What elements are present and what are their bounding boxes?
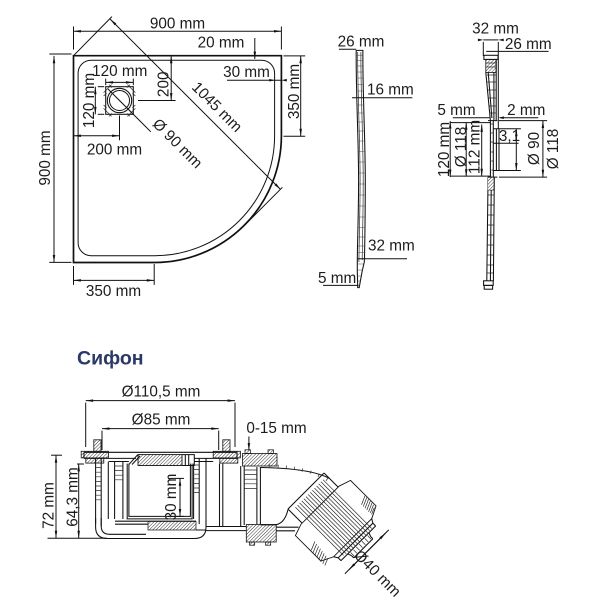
svg-text:200 mm: 200 mm	[87, 141, 142, 158]
svg-text:350 mm: 350 mm	[86, 283, 141, 300]
svg-text:2 mm: 2 mm	[507, 102, 545, 119]
svg-text:Сифон: Сифон	[77, 348, 144, 370]
svg-text:0-15 mm: 0-15 mm	[246, 420, 306, 437]
svg-text:120 mm: 120 mm	[92, 63, 147, 80]
svg-text:5 mm: 5 mm	[318, 270, 356, 287]
svg-text:Ø 90: Ø 90	[526, 132, 543, 165]
svg-text:350 mm: 350 mm	[286, 64, 303, 119]
svg-text:20 mm: 20 mm	[198, 34, 245, 51]
svg-text:16 mm: 16 mm	[367, 82, 414, 99]
svg-text:Ø85 mm: Ø85 mm	[132, 412, 191, 429]
svg-text:5 mm: 5 mm	[437, 102, 475, 119]
svg-text:26 mm: 26 mm	[505, 36, 552, 53]
svg-text:32 mm: 32 mm	[368, 238, 415, 255]
svg-text:72 mm: 72 mm	[40, 482, 57, 529]
svg-text:112 mm: 112 mm	[467, 120, 484, 174]
svg-text:120 mm: 120 mm	[81, 73, 98, 128]
svg-text:30 mm: 30 mm	[223, 64, 270, 81]
svg-text:26 mm: 26 mm	[338, 33, 385, 50]
svg-text:120 mm: 120 mm	[436, 122, 453, 177]
svg-text:Ø110,5 mm: Ø110,5 mm	[122, 384, 201, 401]
svg-text:30 mm: 30 mm	[163, 474, 180, 521]
svg-text:200: 200	[156, 72, 173, 98]
svg-text:900 mm: 900 mm	[150, 15, 205, 32]
svg-text:900 mm: 900 mm	[37, 130, 54, 185]
svg-text:Ø 118: Ø 118	[545, 129, 562, 170]
svg-text:3,1: 3,1	[499, 128, 520, 145]
